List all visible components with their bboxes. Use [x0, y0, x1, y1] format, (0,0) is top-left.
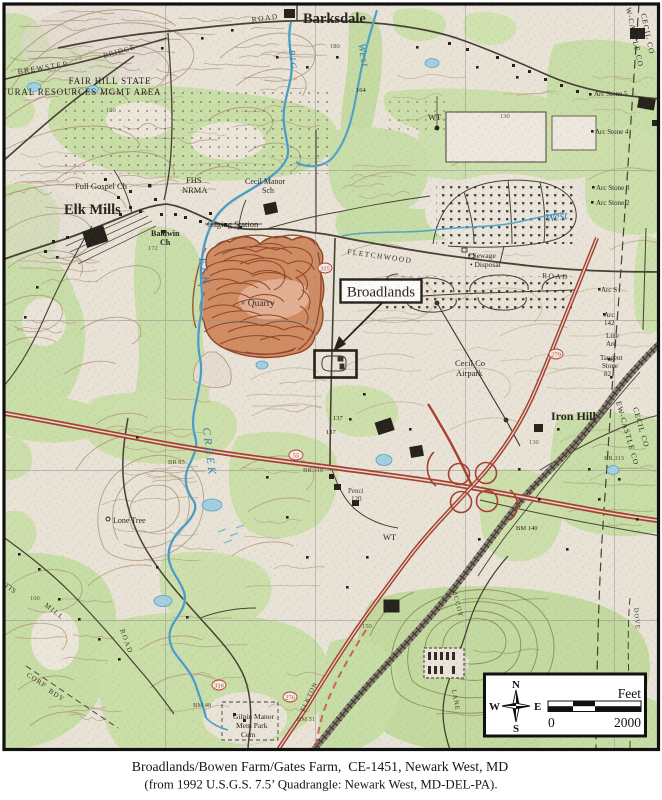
- svg-text:(from 1992 U.S.G.S. 7.5’ Quadr: (from 1992 U.S.G.S. 7.5’ Quadrangle: New…: [144, 778, 497, 792]
- svg-text:W: W: [489, 701, 500, 713]
- svg-text:E: E: [534, 701, 541, 713]
- svg-text:0: 0: [548, 715, 555, 730]
- svg-text:N: N: [512, 679, 520, 691]
- svg-text:2000: 2000: [614, 715, 641, 730]
- svg-text:Broadlands/Bowen Farm/Gates Fa: Broadlands/Bowen Farm/Gates Farm, CE-145…: [132, 759, 508, 774]
- svg-text:Feet: Feet: [618, 686, 641, 701]
- svg-text:S: S: [513, 723, 519, 735]
